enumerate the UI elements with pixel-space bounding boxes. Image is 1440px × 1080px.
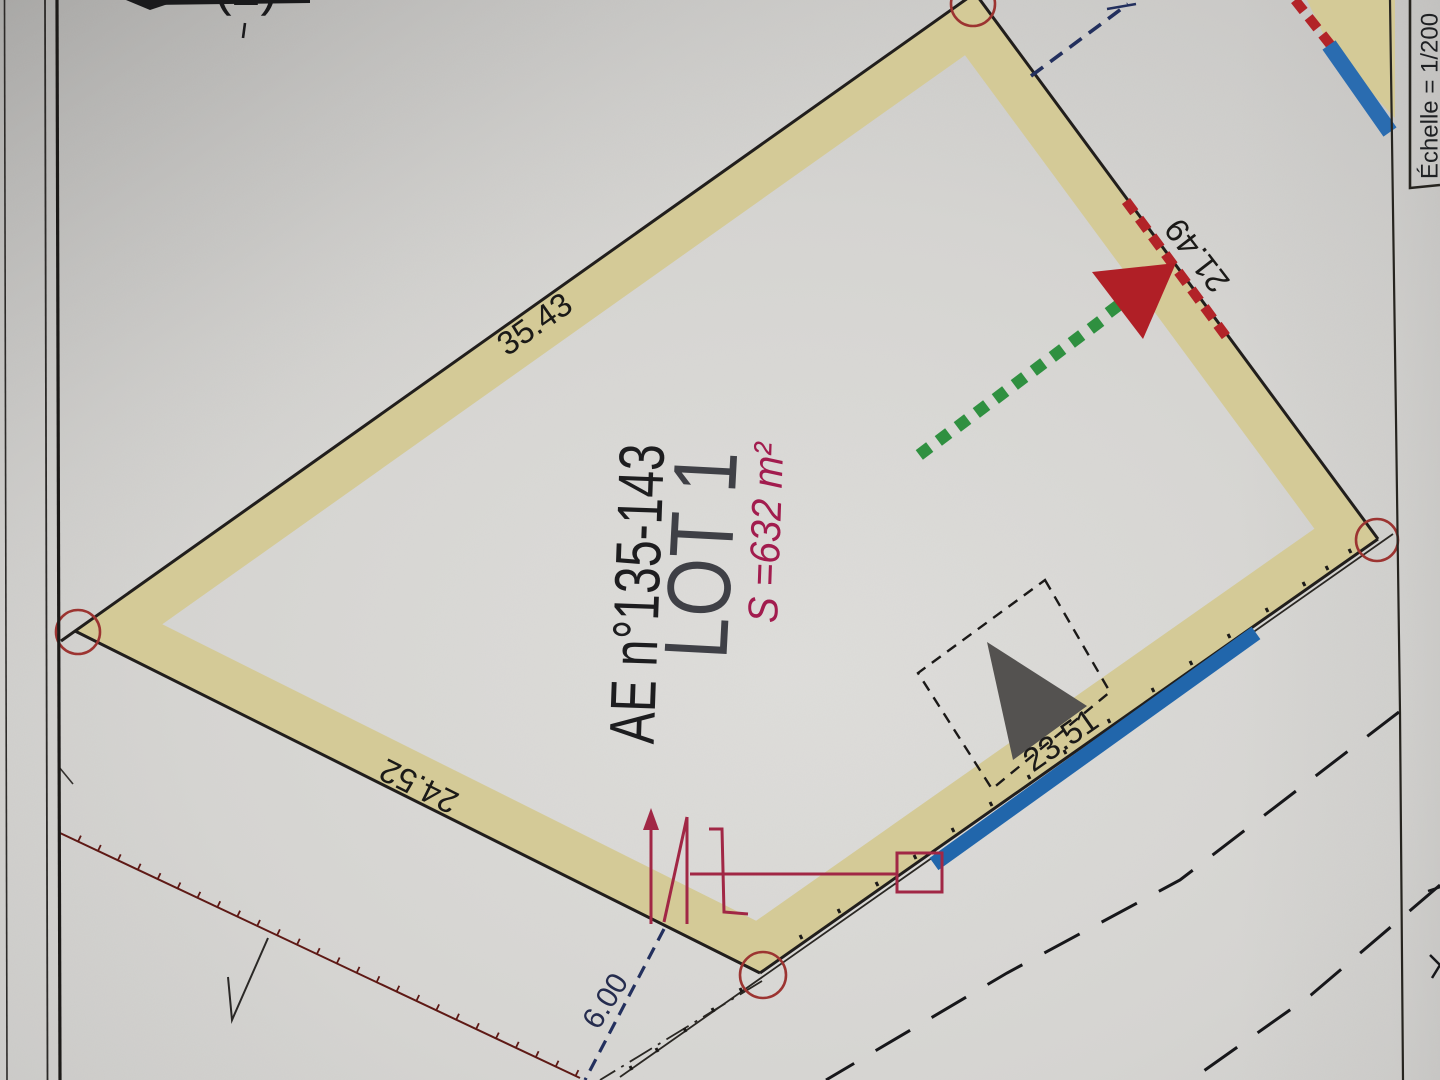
- svg-text:Échelle = 1/200: Échelle = 1/200: [1416, 13, 1440, 179]
- svg-text:(2): (2): [214, 0, 278, 17]
- svg-text:S =632 m²: S =632 m²: [739, 440, 792, 623]
